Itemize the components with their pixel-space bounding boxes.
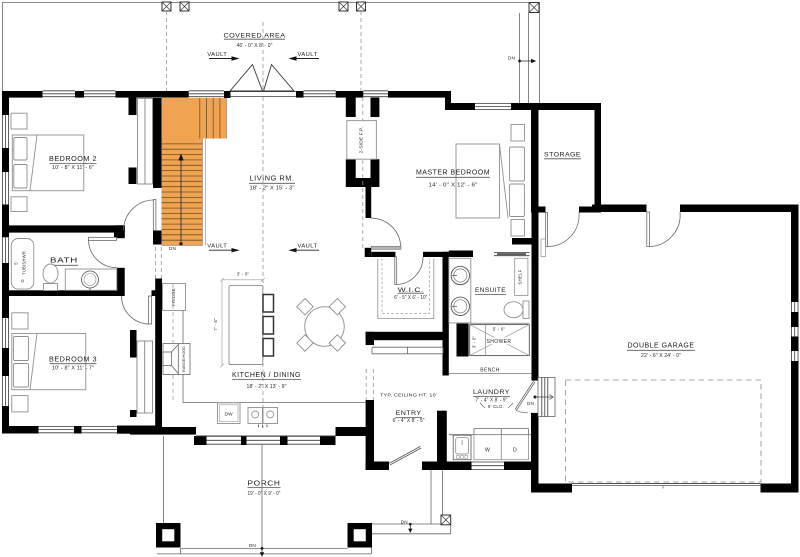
svg-text:18' - 2" X 15' - 3": 18' - 2" X 15' - 3" — [250, 185, 295, 191]
svg-text:BEDROOM 2: BEDROOM 2 — [49, 155, 97, 163]
svg-text:19' - 0" X 9' - 0": 19' - 0" X 9' - 0" — [248, 491, 281, 497]
svg-text:6' - 5" X 6' - 10": 6' - 5" X 6' - 10" — [394, 295, 427, 301]
svg-text:RANGE/HOOD: RANGE/HOOD — [182, 346, 186, 372]
svg-text:SHOWER: SHOWER — [487, 339, 512, 345]
svg-text:DOUBLE GARAGE: DOUBLE GARAGE — [628, 342, 695, 350]
svg-text:5': 5' — [14, 261, 19, 265]
svg-text:ENTRY: ENTRY — [396, 410, 422, 417]
svg-text:7' - 6": 7' - 6" — [213, 318, 218, 331]
svg-text:MASTER BEDROOM: MASTER BEDROOM — [416, 169, 490, 177]
svg-text:LIVING RM.: LIVING RM. — [250, 175, 295, 183]
svg-text:FRIDGE: FRIDGE — [171, 288, 176, 306]
svg-text:10' - 8" X 11' - 7": 10' - 8" X 11' - 7" — [52, 365, 94, 371]
svg-text:DW: DW — [224, 412, 233, 418]
svg-text:VAULT: VAULT — [298, 243, 318, 249]
svg-text:46' - 0" X 8' - 0": 46' - 0" X 8' - 0" — [237, 43, 273, 49]
svg-text:W: W — [485, 448, 490, 454]
svg-text:14' - 0" X 12' - 6": 14' - 0" X 12' - 6" — [429, 183, 478, 189]
svg-text:3' - 0": 3' - 0" — [237, 272, 250, 277]
svg-text:DN: DN — [169, 246, 176, 251]
svg-text:COVERED AREA: COVERED AREA — [224, 32, 286, 39]
svg-text:BATH: BATH — [50, 257, 78, 265]
svg-text:D: D — [513, 448, 517, 454]
svg-text:22' - 6" X 24' - 0": 22' - 6" X 24' - 0" — [641, 353, 681, 359]
svg-text:6' - 4" X 8' - 5": 6' - 4" X 8' - 5" — [393, 418, 425, 424]
svg-text:BEDROOM 3: BEDROOM 3 — [49, 355, 97, 363]
svg-text:SHELF: SHELF — [518, 269, 523, 284]
svg-text:VAULT: VAULT — [207, 243, 227, 249]
svg-text:ENSUITE: ENSUITE — [475, 287, 506, 294]
svg-text:DN: DN — [401, 519, 408, 524]
svg-text:BENCH: BENCH — [480, 367, 500, 373]
svg-text:3' - 0": 3' - 0" — [472, 336, 477, 348]
svg-text:STORAGE: STORAGE — [544, 151, 581, 158]
svg-text:PORCH: PORCH — [248, 479, 281, 487]
svg-text:TUB/SHWR: TUB/SHWR — [22, 251, 27, 275]
svg-text:5' - 6": 5' - 6" — [493, 327, 506, 332]
svg-text:9' CLG.: 9' CLG. — [488, 404, 504, 409]
svg-text:DN: DN — [508, 56, 515, 61]
svg-text:TYP. CEILING HT. 10': TYP. CEILING HT. 10' — [380, 393, 437, 398]
svg-text:10' - 8" X 11' - 6": 10' - 8" X 11' - 6" — [52, 165, 94, 171]
svg-text:LAUNDRY: LAUNDRY — [473, 389, 510, 396]
svg-text:18' - 2" X 13' - 9": 18' - 2" X 13' - 9" — [247, 384, 287, 390]
svg-text:7' - 4" X 8' - 9": 7' - 4" X 8' - 9" — [476, 397, 508, 403]
svg-text:DN: DN — [527, 401, 534, 406]
svg-text:2-SIDE F.P.: 2-SIDE F.P. — [358, 127, 364, 154]
svg-text:KITCHEN / DINING: KITCHEN / DINING — [232, 371, 301, 379]
svg-text:VAULT: VAULT — [207, 52, 227, 58]
svg-text:DN: DN — [249, 543, 256, 548]
svg-text:VAULT: VAULT — [298, 52, 318, 58]
